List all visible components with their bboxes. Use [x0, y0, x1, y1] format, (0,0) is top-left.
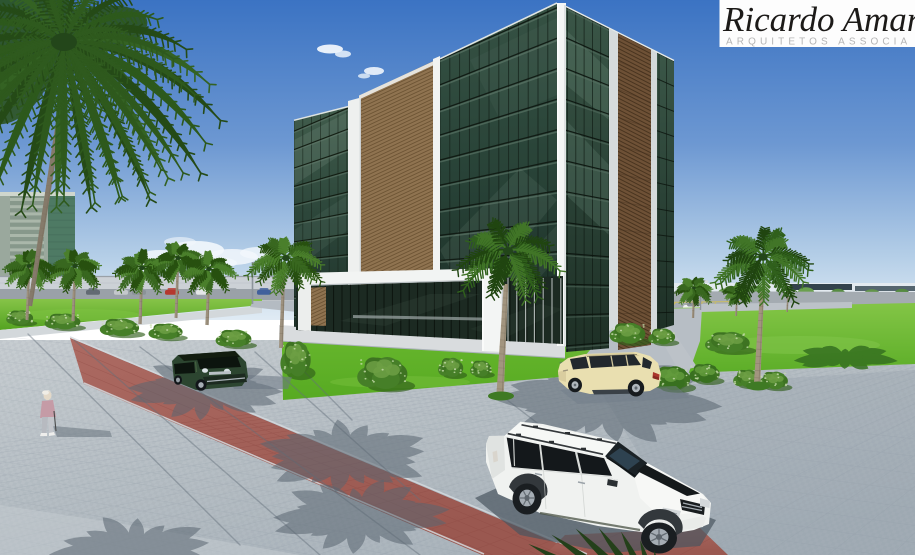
svg-text:Ricardo Amar: Ricardo Amar — [722, 0, 915, 39]
svg-text:ARQUITETOS ASSOCIA: ARQUITETOS ASSOCIA — [726, 37, 911, 48]
